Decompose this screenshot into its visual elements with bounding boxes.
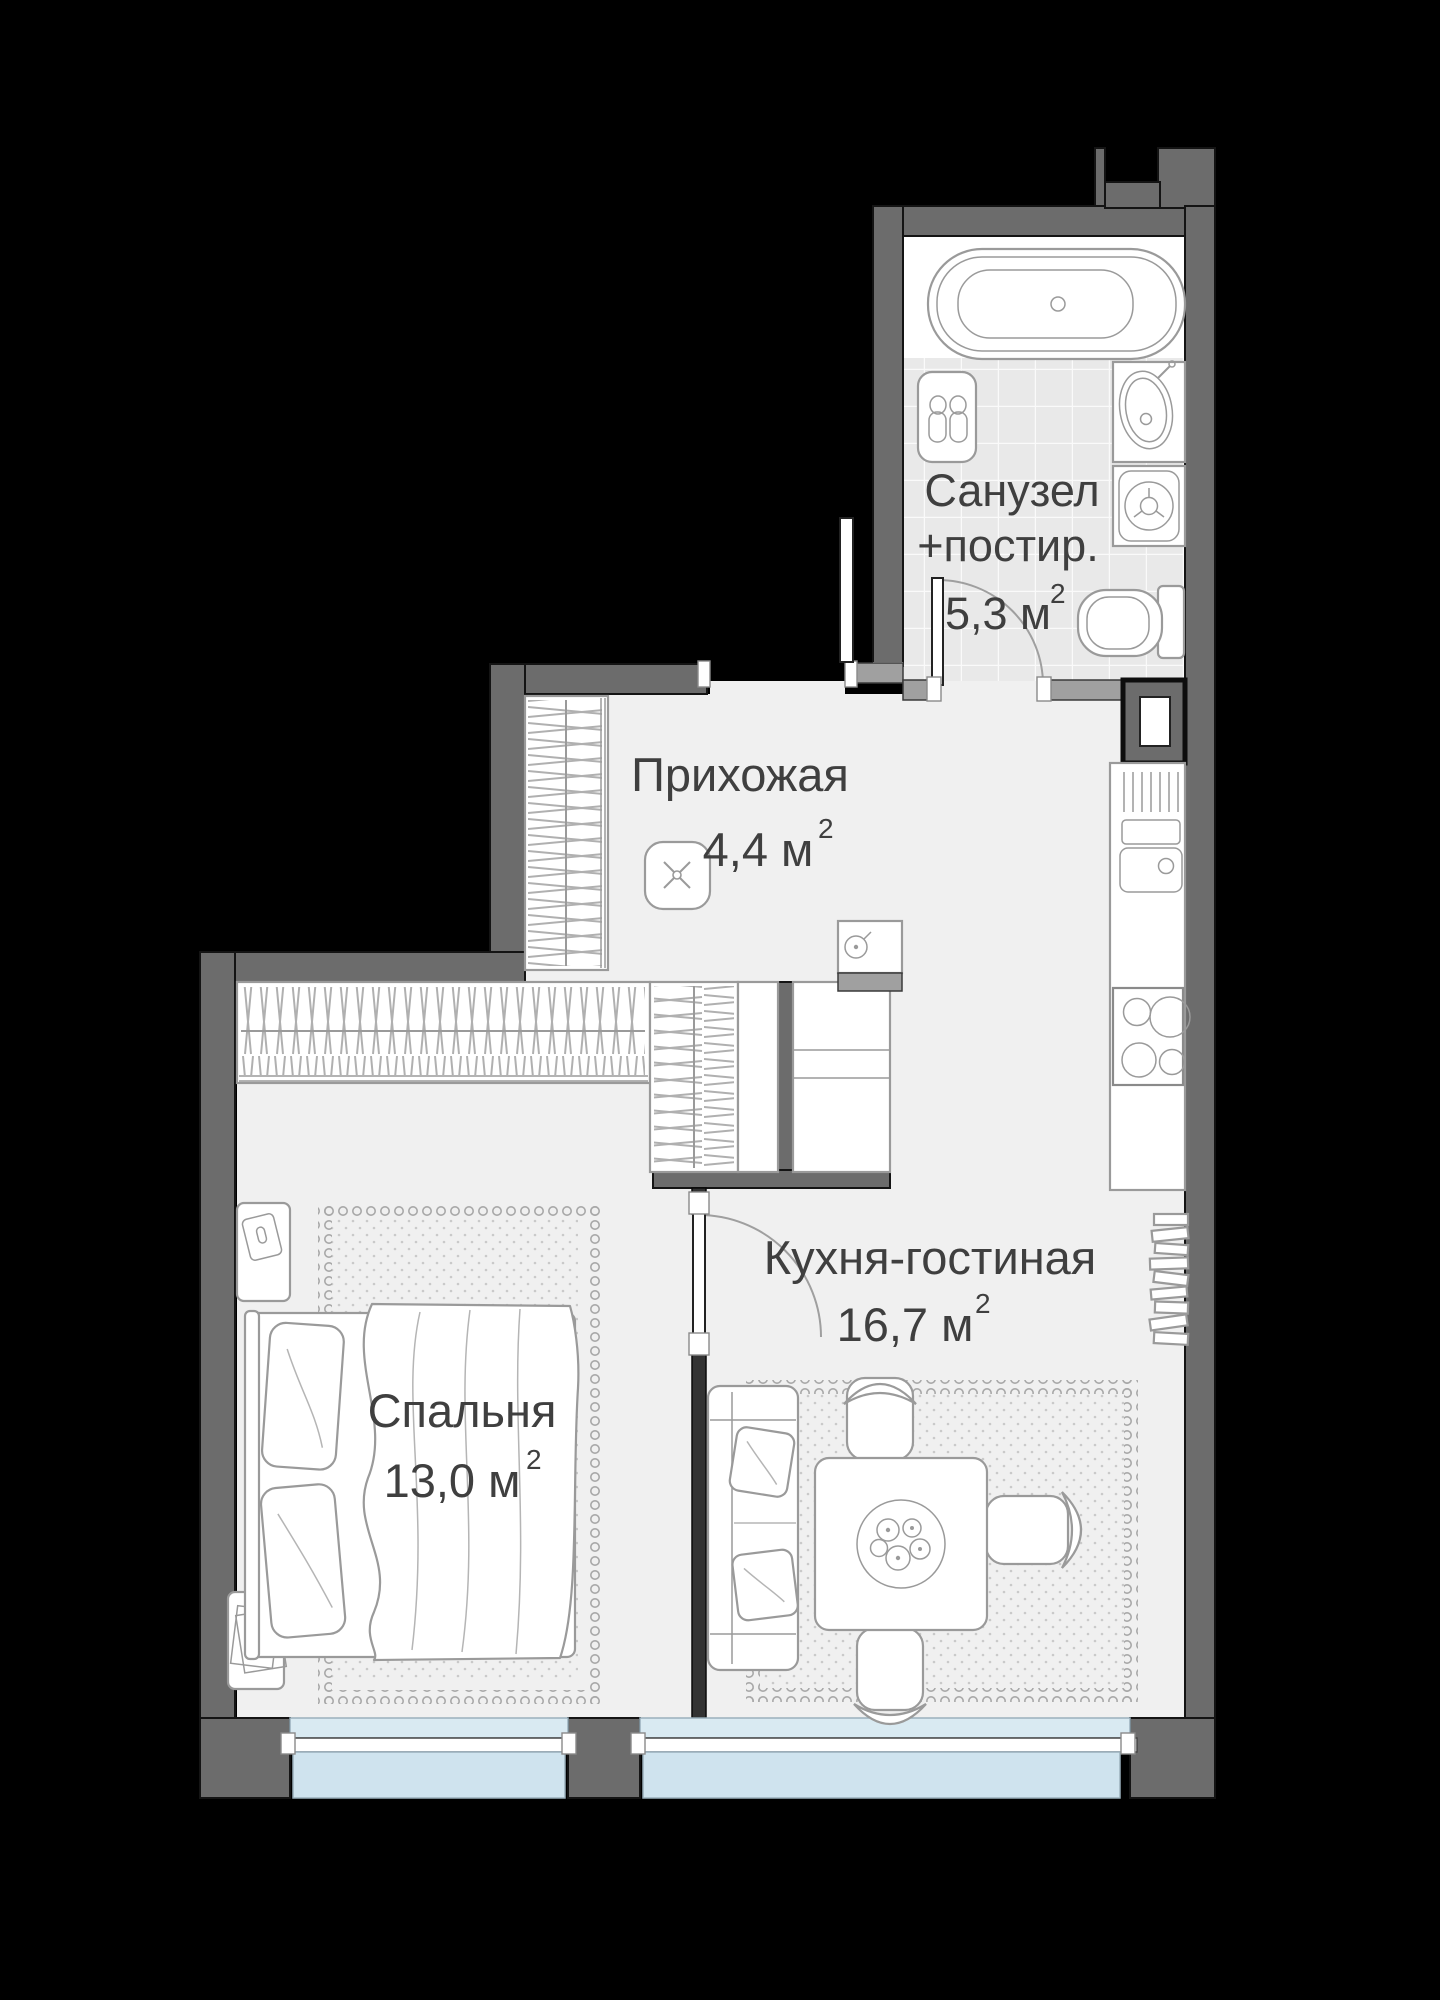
hallway-label: Прихожая bbox=[631, 748, 849, 801]
sofa bbox=[708, 1386, 799, 1670]
closet-entry bbox=[650, 982, 778, 1172]
floor-plan-svg: Санузел +постир. 5,3 м 2 Прихожая 4,4 м … bbox=[0, 0, 1440, 2000]
window-kitchen bbox=[631, 1718, 1137, 1798]
bedroom-label: Спальня bbox=[368, 1384, 557, 1437]
pouf bbox=[645, 842, 710, 909]
bedroom-area-sup: 2 bbox=[526, 1444, 542, 1475]
hallway-area-sup: 2 bbox=[818, 813, 834, 844]
bedroom-area: 13,0 м bbox=[384, 1454, 521, 1507]
chair-top bbox=[844, 1378, 916, 1460]
toilet bbox=[1078, 586, 1184, 658]
chair-bottom bbox=[854, 1628, 926, 1724]
ventilation-shaft bbox=[1123, 680, 1185, 763]
hallway-console bbox=[838, 921, 902, 991]
kitchen-living-label: Кухня-гостиная bbox=[764, 1231, 1097, 1284]
window-bedroom bbox=[281, 1718, 576, 1798]
entrance-door bbox=[698, 518, 857, 687]
hallway-area: 4,4 м bbox=[703, 823, 814, 876]
kitchen-living-area-sup: 2 bbox=[975, 1288, 991, 1319]
kitchen-cabinet-block bbox=[793, 982, 890, 1172]
wardrobe-bedroom bbox=[237, 982, 650, 1083]
bathroom-area: 5,3 м bbox=[945, 588, 1051, 639]
wardrobe-hallway bbox=[525, 696, 608, 970]
nightstand-top bbox=[237, 1203, 290, 1301]
kitchen-counter bbox=[1110, 763, 1190, 1190]
floor-plan: Санузел +постир. 5,3 м 2 Прихожая 4,4 м … bbox=[0, 0, 1440, 2000]
bookshelf bbox=[1149, 1214, 1188, 1345]
entrance-threshold bbox=[710, 681, 845, 694]
stove bbox=[1113, 988, 1190, 1085]
kitchen-living-area: 16,7 м bbox=[837, 1298, 974, 1351]
bath-mat bbox=[918, 372, 976, 462]
bathroom-area-sup: 2 bbox=[1050, 578, 1066, 609]
bathroom-label-2: +постир. bbox=[917, 520, 1098, 571]
bathroom-label: Санузел bbox=[924, 465, 1099, 516]
washing-machine bbox=[1113, 466, 1185, 546]
bathtub bbox=[928, 249, 1185, 359]
chair-right bbox=[986, 1492, 1081, 1568]
bathroom-sink bbox=[1113, 361, 1185, 462]
